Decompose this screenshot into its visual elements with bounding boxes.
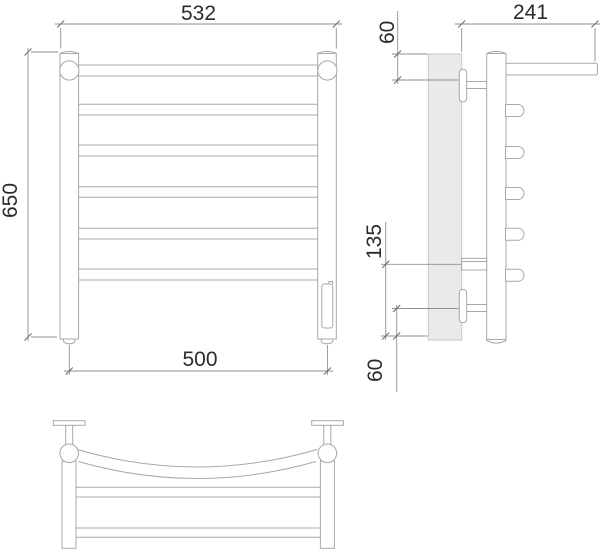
front-view: 532 650 500	[0, 2, 342, 375]
dim-label-500: 500	[182, 348, 217, 371]
front-rails	[79, 65, 318, 280]
side-view: 241 60 135 60	[363, 1, 600, 392]
top-view-straight-rails	[76, 487, 320, 537]
top-view-left-joint	[60, 444, 79, 463]
top-view-right-post	[320, 461, 334, 548]
dim-label-135: 135	[363, 224, 386, 259]
upper-bracket	[459, 69, 486, 102]
top-view-right-bracket	[312, 421, 344, 446]
lower-connector	[462, 258, 487, 270]
top-rail-side	[506, 63, 598, 75]
lower-bracket	[459, 290, 486, 323]
dim-overall-width: 532	[55, 2, 342, 49]
dim-label-60-top: 60	[376, 21, 399, 44]
curved-rail	[78, 450, 318, 479]
dim-depth: 241	[455, 1, 600, 62]
top-view-left-bracket	[53, 421, 85, 446]
top-view	[53, 421, 343, 549]
dim-label-60-bottom: 60	[364, 359, 387, 382]
top-view-left-post	[62, 461, 76, 548]
dim-label-650: 650	[0, 183, 22, 218]
dim-center-width: 500	[64, 345, 333, 375]
right-collector-circle	[318, 61, 337, 80]
dim-label-532: 532	[181, 2, 216, 25]
wall-strip	[428, 54, 461, 340]
left-collector-circle	[60, 61, 79, 80]
top-view-right-joint	[318, 444, 337, 463]
side-post	[487, 51, 506, 343]
towel-rail-drawing: 532 650 500	[0, 0, 600, 550]
dim-label-241: 241	[513, 1, 548, 24]
right-post	[318, 51, 337, 343]
side-rail-ends	[506, 105, 525, 282]
dim-height: 650	[0, 48, 58, 341]
left-post	[60, 51, 79, 343]
